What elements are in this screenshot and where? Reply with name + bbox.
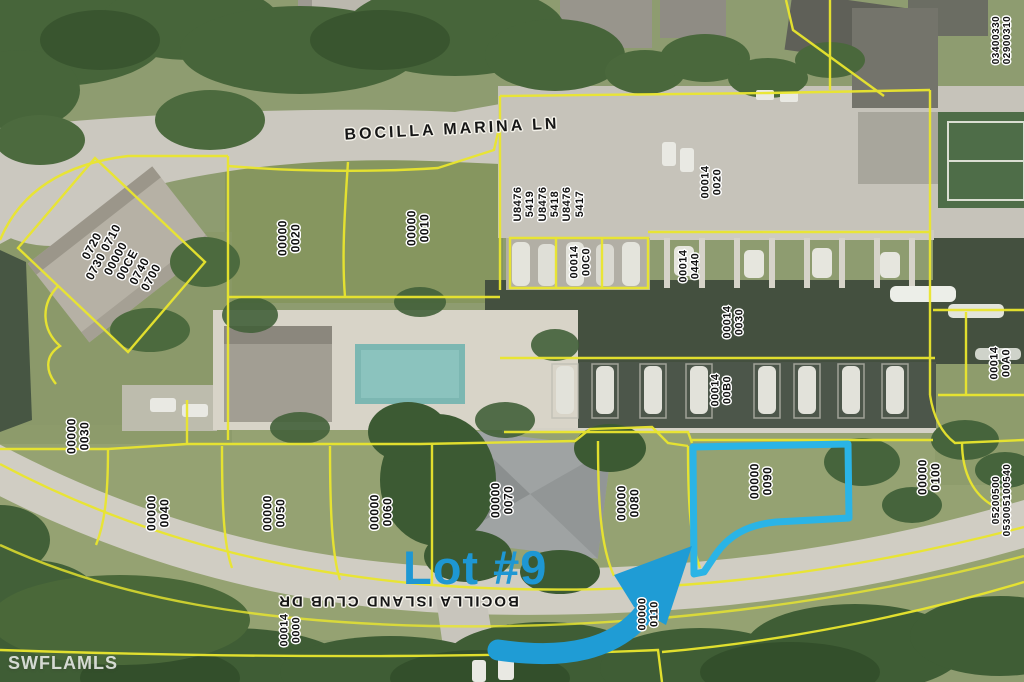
parcel-label-lot-0040: 00000 0040 (146, 495, 173, 531)
parcel-label-lot-0060: 00000 0060 (369, 494, 396, 530)
parcel-label-straps-0520: 05200500 053005100540 (991, 464, 1013, 537)
parcel-label-lot-0070: 00000 0070 (490, 482, 517, 518)
parcel-label-lot-0010: 00000 0010 (406, 210, 433, 246)
parcel-label-dock-00014-00C0: 00014 00C0 (569, 245, 594, 278)
parcel-label-lot-00014-00A0: 00014 00A0 (989, 346, 1014, 379)
label-layer: Lot #9 SWFLAMLS 0720 0730 0710 00000 00C… (0, 0, 1024, 682)
parcel-label-dock-00014-00B0: 00014 00B0 (710, 373, 735, 406)
parcel-label-lot-0030: 00000 0030 (66, 418, 93, 454)
lot9-callout-text: Lot #9 (403, 540, 547, 595)
street-label-bocilla-marina-ln: BOCILLA MARINA LN (344, 115, 560, 144)
parcel-label-canal-00014-0030: 00014 0030 (722, 305, 747, 338)
parcel-label-lot-0090: 00000 0090 (749, 463, 776, 499)
parcel-label-lot-0020: 00000 0020 (277, 220, 304, 256)
parcel-label-lot-00014-0000: 00014 0000 (279, 613, 304, 646)
street-label-bocilla-island-club-dr: BOCILLA ISLAND CLUB DR (277, 593, 519, 610)
parcel-label-lot-0050: 00000 0050 (262, 495, 289, 531)
parcel-label-lot-0080: 00000 0080 (616, 485, 643, 521)
parcel-label-lot-00014-0440: 00014 0440 (678, 249, 703, 282)
parcel-label-lot-0100: 00000 0100 (917, 459, 944, 495)
parcel-label-lot-0110: 00000 0110 (637, 597, 662, 630)
parcel-label-condo-block: 0720 0730 0710 00000 00CE 0740 0700 (72, 216, 172, 308)
mls-watermark: SWFLAMLS (8, 653, 118, 674)
parcel-label-dock-u8476: U8476 5419 U8476 5418 U8476 5417 (512, 187, 586, 222)
parcel-label-straps-0340: 03400330 02900310 (991, 16, 1013, 65)
parcel-label-lot-00014-0020: 00014 0020 (700, 165, 725, 198)
aerial-parcel-map: Lot #9 SWFLAMLS 0720 0730 0710 00000 00C… (0, 0, 1024, 682)
